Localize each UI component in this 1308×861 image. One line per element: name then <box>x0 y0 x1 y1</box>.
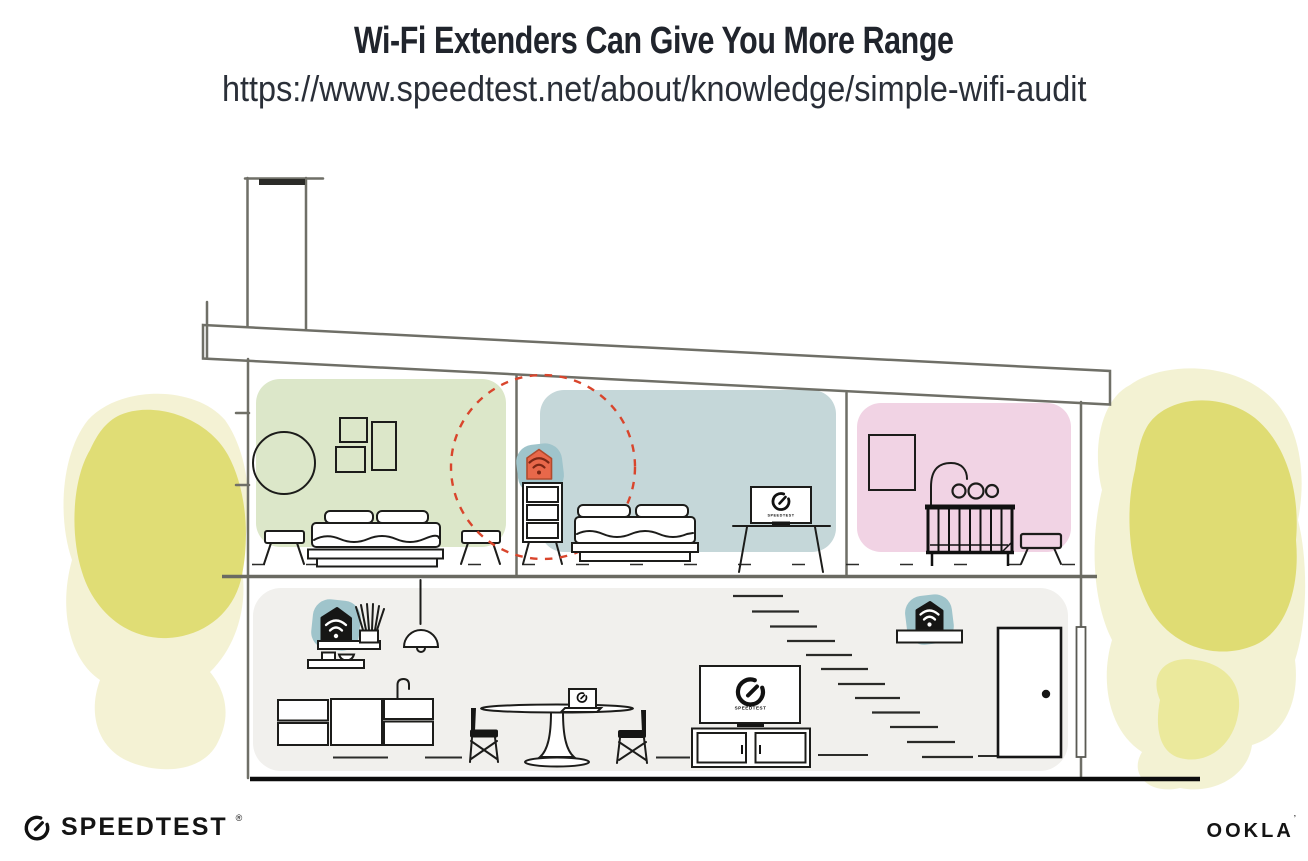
shelf-board-lower <box>308 660 364 668</box>
media-console <box>692 729 810 768</box>
page-url: https://www.speedtest.net/about/knowledg… <box>222 68 1086 110</box>
infographic-page: SPEEDTEST <box>0 0 1308 861</box>
tv-screen-label: SPEEDTEST <box>767 514 794 518</box>
tv-screen-label: SPEEDTEST <box>735 706 767 711</box>
trademark-mark: ’ <box>1294 814 1296 825</box>
nursery-panel <box>857 403 1071 552</box>
wifi-router-shelf <box>310 598 384 653</box>
tv-base <box>772 522 790 526</box>
front-door <box>998 628 1061 757</box>
sidelight-window <box>1077 627 1086 757</box>
tv-base <box>737 724 764 728</box>
header-url-row: https://www.speedtest.net/about/knowledg… <box>0 68 1308 110</box>
tv-living: SPEEDTEST <box>700 666 800 727</box>
registered-mark: ® <box>236 813 243 823</box>
page-title: Wi-Fi Extenders Can Give You More Range <box>354 20 954 63</box>
header: Wi-Fi Extenders Can Give You More Range <box>0 20 1308 63</box>
crib <box>925 507 1015 566</box>
ookla-logo: OOKLA’ <box>1207 820 1296 843</box>
door-knob <box>1042 690 1050 698</box>
yellow-bush-right <box>1095 368 1306 789</box>
dresser <box>523 483 562 564</box>
house-cross-section-illustration: SPEEDTEST <box>0 0 1308 861</box>
nightstand-left <box>264 531 304 564</box>
ookla-wordmark: OOKLA <box>1207 820 1294 842</box>
speedtest-logo: SPEEDTEST® <box>22 812 243 842</box>
speedtest-wordmark: SPEEDTEST <box>61 813 228 842</box>
chimney-cap-band <box>259 179 305 185</box>
shelf-board-right <box>897 631 962 643</box>
chimney <box>245 178 323 331</box>
speedtest-gauge-icon <box>22 812 52 842</box>
stool-nursery <box>1021 534 1061 564</box>
yellow-bush-left <box>64 394 249 770</box>
